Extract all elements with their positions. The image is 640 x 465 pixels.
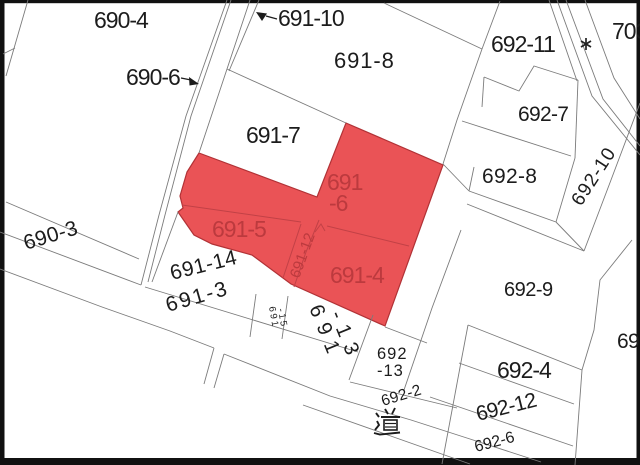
- svg-text:691-4: 691-4: [330, 262, 385, 288]
- svg-text:692-8: 692-8: [482, 165, 537, 188]
- svg-text:703: 703: [612, 18, 640, 44]
- svg-text:690-6: 690-6: [126, 64, 180, 90]
- svg-text:691-5: 691-5: [212, 216, 266, 242]
- svg-text:692: 692: [377, 345, 408, 363]
- svg-text:691-10: 691-10: [278, 5, 344, 31]
- svg-text:692-11: 692-11: [491, 31, 555, 57]
- svg-text:-6: -6: [329, 190, 348, 216]
- svg-text:691-8: 691-8: [334, 48, 395, 73]
- svg-text:692-4: 692-4: [497, 357, 552, 383]
- svg-text:-13: -13: [377, 362, 404, 380]
- svg-text:690-4: 690-4: [94, 7, 149, 33]
- svg-text:69: 69: [617, 330, 639, 353]
- svg-text:692-9: 692-9: [504, 279, 553, 301]
- svg-text:692-7: 692-7: [518, 103, 568, 126]
- svg-text:691-7: 691-7: [246, 122, 300, 148]
